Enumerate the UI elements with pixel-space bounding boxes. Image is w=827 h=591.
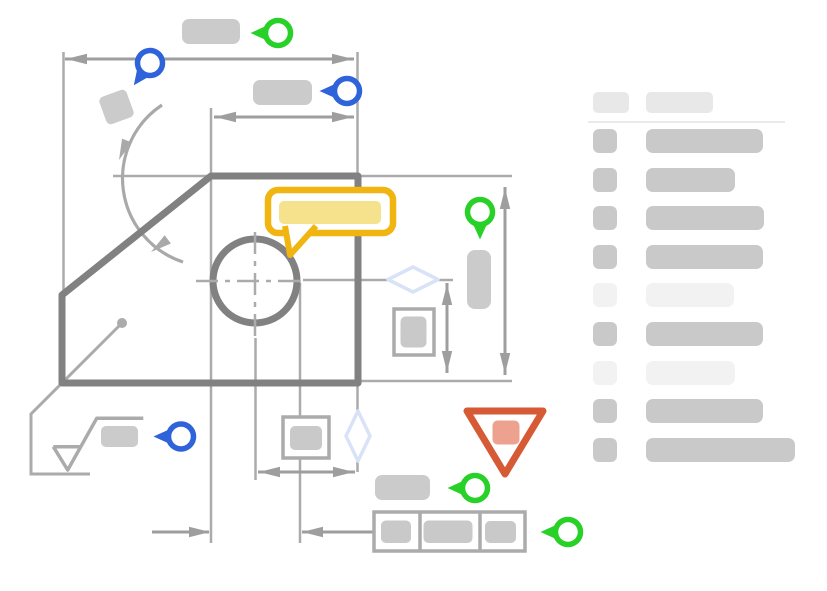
comment-text-placeholder bbox=[279, 201, 381, 224]
datum-diamond-horizontal bbox=[388, 267, 438, 292]
label-placeholder-lower bbox=[375, 475, 430, 500]
annotation-canvas bbox=[0, 0, 827, 591]
datum-diamond-vertical bbox=[346, 411, 370, 461]
legend-row-swatch bbox=[593, 399, 617, 423]
legend-header-swatch bbox=[593, 92, 629, 113]
marker-pin-green-lower-mid-map-pin-icon[interactable] bbox=[448, 476, 488, 501]
legend-row-label-placeholder bbox=[646, 399, 763, 423]
tolerance-box-right bbox=[394, 309, 434, 355]
legend-row-2[interactable] bbox=[588, 168, 803, 192]
legend-row-1[interactable] bbox=[588, 129, 803, 153]
legend-divider bbox=[588, 121, 785, 123]
angular-dimension-arc bbox=[114, 105, 183, 262]
legend-panel bbox=[588, 88, 803, 473]
label-placeholder-surface bbox=[101, 426, 138, 447]
legend-row-3[interactable] bbox=[588, 206, 803, 230]
legend-row-label-placeholder bbox=[646, 361, 735, 385]
feature-control-frame bbox=[374, 512, 525, 551]
legend-header-label bbox=[646, 92, 713, 113]
dimension-arrowheads bbox=[66, 54, 510, 537]
legend-row-swatch bbox=[593, 438, 617, 462]
legend-row-7[interactable] bbox=[588, 361, 803, 385]
leader-dot bbox=[117, 318, 127, 328]
legend-row-9[interactable] bbox=[588, 438, 803, 462]
marker-pin-blue-upper-map-pin-icon[interactable] bbox=[320, 79, 360, 104]
legend-row-label-placeholder bbox=[646, 322, 763, 346]
legend-row-label-placeholder bbox=[646, 438, 795, 462]
legend-row-8[interactable] bbox=[588, 399, 803, 423]
label-placeholder-vertical bbox=[467, 250, 491, 309]
label-placeholder-upper bbox=[253, 80, 312, 105]
legend-row-swatch bbox=[593, 168, 617, 192]
warning-triangle-icon[interactable] bbox=[467, 411, 543, 474]
comment-bubble-callout[interactable] bbox=[268, 190, 393, 255]
legend-row-4[interactable] bbox=[588, 245, 803, 269]
legend-row-swatch bbox=[593, 283, 617, 307]
label-placeholder-top bbox=[182, 19, 240, 44]
legend-row-label-placeholder bbox=[646, 245, 763, 269]
legend-row-label-placeholder bbox=[646, 168, 735, 192]
legend-row-6[interactable] bbox=[588, 322, 803, 346]
legend-row-label-placeholder bbox=[646, 129, 763, 153]
legend-row-swatch bbox=[593, 129, 617, 153]
legend-row-swatch bbox=[593, 245, 617, 269]
marker-pin-green-down-mid-map-pin-icon[interactable] bbox=[468, 200, 493, 240]
legend-row-label-placeholder bbox=[646, 283, 734, 307]
tolerance-box-bottom bbox=[283, 417, 329, 458]
bubble-tail bbox=[285, 226, 316, 255]
legend-row-5[interactable] bbox=[588, 283, 803, 307]
label-placeholder-rotated bbox=[98, 88, 135, 125]
marker-pin-blue-lower-left-map-pin-icon[interactable] bbox=[154, 424, 194, 449]
warning-text-placeholder bbox=[493, 421, 520, 445]
legend-row-swatch bbox=[593, 322, 617, 346]
marker-pin-blue-angled-top-left-map-pin-icon[interactable] bbox=[124, 46, 168, 93]
dimension-lines bbox=[65, 59, 505, 532]
marker-pin-green-top-map-pin-icon[interactable] bbox=[251, 21, 291, 46]
marker-pin-green-bottom-right-map-pin-icon[interactable] bbox=[541, 520, 581, 545]
legend-row-swatch bbox=[593, 361, 617, 385]
legend-row-swatch bbox=[593, 206, 617, 230]
legend-row-label-placeholder bbox=[646, 206, 764, 230]
